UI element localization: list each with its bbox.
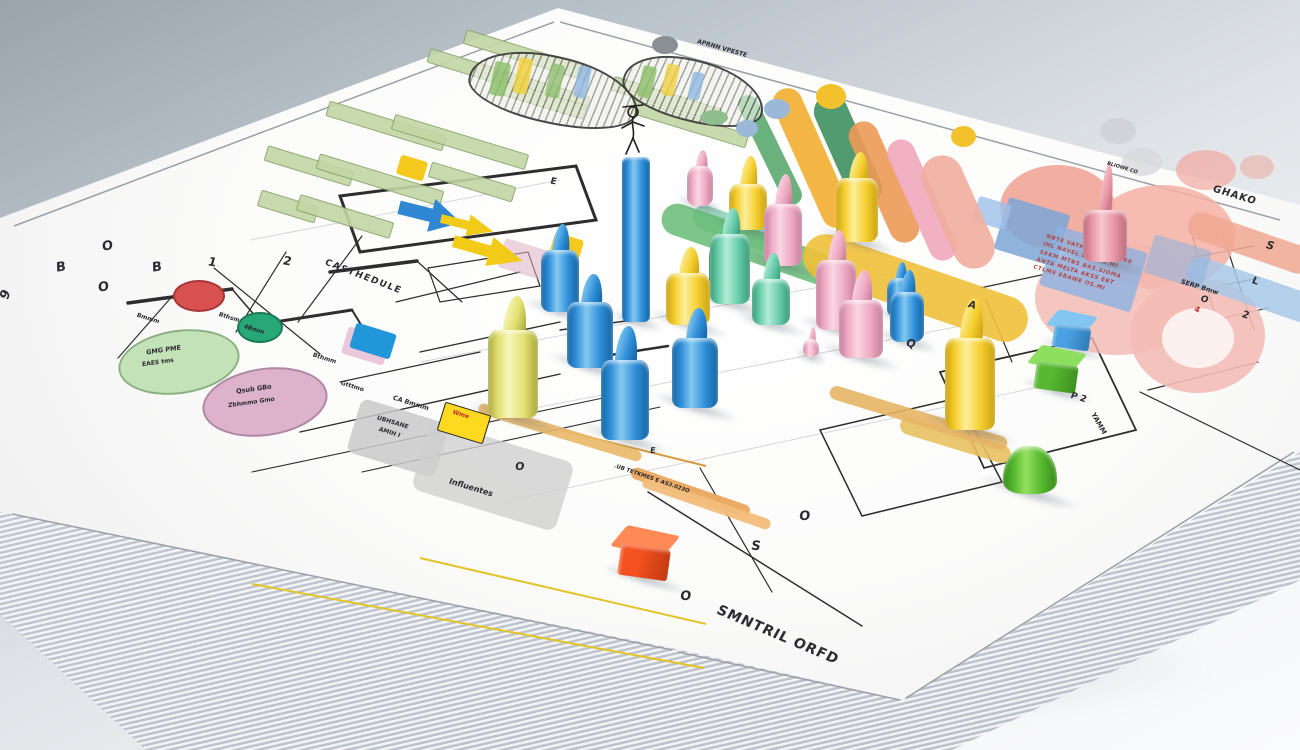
handwritten-label: S — [750, 540, 762, 555]
scene: 3D render of a stack of white papers pri… — [0, 0, 1300, 750]
handwritten-label: Qsub GBo — [236, 383, 272, 395]
handwritten-label: SMNTRIL ORFD — [713, 603, 841, 668]
handwritten-label: Wme — [451, 410, 470, 421]
handwritten-label: 4 — [1192, 306, 1201, 316]
handwritten-label: APRNN VPESTE — [696, 39, 748, 59]
handwritten-labels-layer: OBBO921CASTHEDULEBmmmBthsm4BmmBthmmGtttm… — [0, 0, 1300, 750]
handwritten-label: Bthsm — [217, 312, 240, 324]
handwritten-label: O — [798, 510, 811, 524]
handwritten-label: Gtttmo — [339, 381, 364, 394]
handwritten-label: O — [514, 461, 525, 473]
handwritten-label: GHAKO — [1211, 184, 1258, 207]
handwritten-label: E — [650, 447, 656, 456]
handwritten-label: Influentes — [447, 478, 494, 499]
handwritten-label: L — [1250, 275, 1260, 287]
handwritten-label: CASTHEDULE — [322, 259, 403, 297]
handwritten-label: 4Bmm — [242, 324, 265, 336]
handwritten-label: B — [152, 260, 162, 276]
handwritten-label: EAES tms — [142, 358, 174, 369]
handwritten-label: O — [679, 590, 692, 604]
handwritten-label: BLIOWE CO — [1106, 162, 1138, 176]
handwritten-label: Q — [904, 337, 917, 351]
handwritten-label: 2 — [1240, 309, 1251, 321]
handwritten-label: AMIH I — [377, 427, 401, 440]
handwritten-label: CA Bmmm — [391, 395, 430, 413]
handwritten-label: Bthmm — [311, 353, 337, 366]
handwritten-label: Zbhmmo Gmo — [228, 397, 275, 410]
handwritten-label: O — [98, 280, 109, 296]
handwritten-label: .UB TETKMES E AS3.023O — [613, 463, 691, 494]
handwritten-label: 9 — [0, 288, 15, 303]
handwritten-label: B — [56, 260, 66, 276]
handwritten-label: YAMM — [1088, 412, 1107, 436]
handwritten-label: Bmmm — [135, 313, 160, 326]
handwritten-label: E — [549, 178, 558, 189]
handwritten-label: O — [102, 239, 113, 255]
handwritten-label: 2 — [281, 254, 293, 268]
handwritten-label: P 2 — [1068, 392, 1087, 406]
handwritten-label: A — [966, 299, 977, 311]
handwritten-label: S — [1264, 239, 1276, 253]
handwritten-label: SERP Bmw — [1179, 279, 1219, 297]
handwritten-label: 1 — [206, 255, 218, 269]
handwritten-label: GMG PME — [146, 345, 181, 357]
